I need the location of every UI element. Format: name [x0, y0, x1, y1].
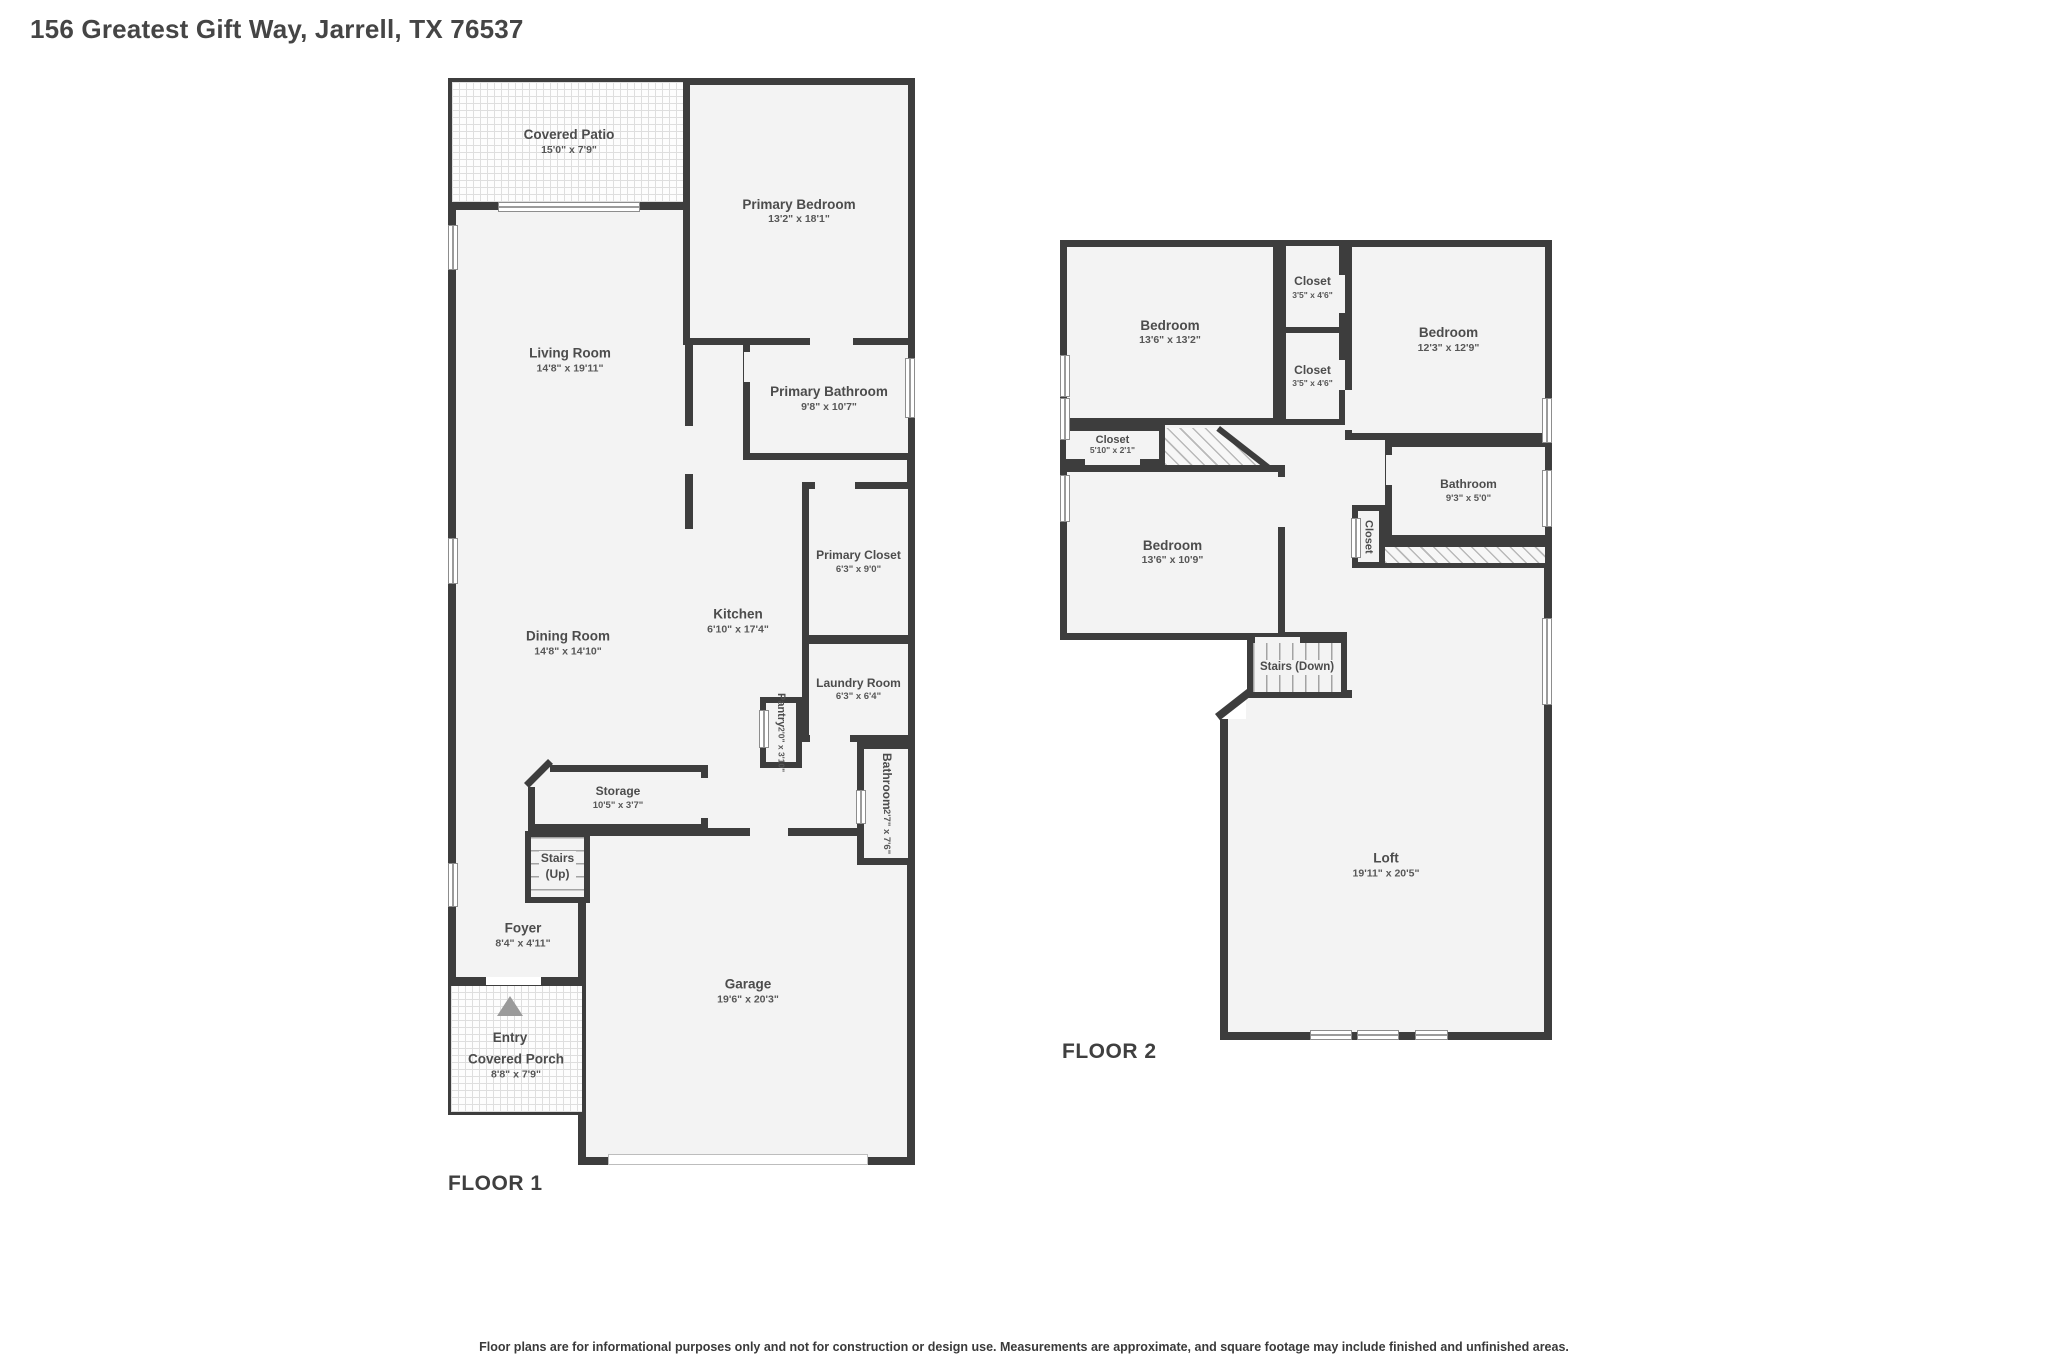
window [448, 538, 458, 584]
window [498, 202, 640, 212]
kitchen-label: Kitchen 6'10" x 17'4" [707, 605, 769, 636]
stairs-up-name: Stairs [541, 851, 574, 867]
room-stairs-down: Stairs (Down) [1247, 637, 1347, 698]
door-opening [744, 352, 750, 382]
floor-plan-page: 156 Greatest Gift Way, Jarrell, TX 76537… [0, 0, 2048, 1365]
bedroom-3-label: Bedroom 13'6" x 10'9" [1142, 537, 1204, 568]
closet-3-dims: 5'10" x 2'1" [1090, 446, 1135, 455]
dining-room-name: Dining Room [526, 627, 610, 645]
closet-4-label: Closet [1361, 520, 1375, 554]
room-closet-1: Closet 3'5" x 4'6" [1280, 240, 1345, 335]
loft-label: Loft 19'11" x 20'5" [1353, 849, 1420, 880]
bathroom-2-label: Bathroom 9'3" x 5'0" [1440, 477, 1497, 505]
primary-closet-dims: 6'3" x 9'0" [816, 564, 901, 576]
bathroom-2-name: Bathroom [1440, 477, 1497, 493]
foyer-label: Foyer 8'4" x 4'11" [495, 919, 550, 950]
bathroom-2-dims: 9'3" x 5'0" [1440, 493, 1497, 505]
window [1542, 618, 1552, 705]
bedroom-1-dims: 13'6" x 13'2" [1139, 334, 1201, 348]
door-opening [1339, 360, 1345, 390]
primary-bedroom-name: Primary Bedroom [742, 196, 855, 214]
door-opening [750, 828, 788, 836]
room-storage: Storage 10'5" x 3'7" [528, 765, 708, 831]
page-title: 156 Greatest Gift Way, Jarrell, TX 76537 [30, 14, 524, 45]
bedroom-1-name: Bedroom [1139, 317, 1201, 335]
door-opening [1386, 455, 1392, 485]
room-bedroom-3: Bedroom 13'6" x 10'9" [1060, 465, 1285, 640]
closet-1-label: Closet 3'5" x 4'6" [1292, 274, 1332, 301]
window [1415, 1030, 1448, 1040]
bedroom-2-dims: 12'3" x 12'9" [1418, 342, 1480, 356]
loft-dims: 19'11" x 20'5" [1353, 867, 1420, 881]
window [1060, 355, 1070, 397]
living-room-name: Living Room [529, 344, 611, 362]
room-bedroom-1: Bedroom 13'6" x 13'2" [1060, 240, 1280, 425]
primary-bathroom-name: Primary Bathroom [770, 383, 888, 401]
dining-room-label: Dining Room 14'8" x 14'10" [526, 627, 610, 658]
window [1351, 518, 1361, 558]
door-opening [1345, 390, 1353, 430]
covered-patio-name: Covered Patio [524, 126, 615, 144]
bedroom-2-label: Bedroom 12'3" x 12'9" [1418, 324, 1480, 355]
room-primary-bedroom: Primary Bedroom 13'2" x 18'1" [683, 78, 915, 345]
bedroom-1-label: Bedroom 13'6" x 13'2" [1139, 317, 1201, 348]
foyer-dims: 8'4" x 4'11" [495, 937, 550, 951]
window [1542, 470, 1552, 527]
door-opening [815, 482, 855, 489]
pantry-name: Pantry [774, 693, 788, 727]
entry-label: Entry [493, 1029, 528, 1047]
closet-4-name: Closet [1361, 520, 1375, 554]
window [1310, 1030, 1352, 1040]
door-opening [700, 778, 708, 818]
primary-bathroom-label: Primary Bathroom 9'8" x 10'7" [770, 383, 888, 414]
door-opening [810, 338, 853, 345]
living-room-label: Living Room 14'8" x 19'11" [529, 344, 611, 375]
dining-room-dims: 14'8" x 14'10" [526, 645, 610, 659]
garage-dims: 19'6" x 20'3" [717, 993, 779, 1007]
pantry-label: Pantry 2'0" x 3'10" [774, 693, 788, 772]
primary-closet-label: Primary Closet 6'3" x 9'0" [816, 548, 901, 576]
laundry-name: Laundry Room [816, 676, 901, 692]
bathroom1-label: Bathroom 2'7" x 7'6" [878, 753, 894, 855]
covered-patio-dims: 15'0" x 7'9" [524, 144, 615, 158]
wall-living-kitchen-upper [685, 338, 693, 426]
closet-1-name: Closet [1292, 274, 1332, 290]
living-room-dims: 14'8" x 19'11" [529, 362, 611, 376]
bedroom-2-name: Bedroom [1418, 324, 1480, 342]
kitchen-name: Kitchen [707, 605, 769, 623]
window [1060, 475, 1070, 522]
window [759, 710, 769, 748]
kitchen-dims: 6'10" x 17'4" [707, 623, 769, 637]
floor2-label: FLOOR 2 [1062, 1040, 1157, 1064]
window [905, 358, 915, 418]
room-primary-closet: Primary Closet 6'3" x 9'0" [802, 482, 915, 642]
garage-label: Garage 19'6" x 20'3" [717, 975, 779, 1006]
room-laundry: Laundry Room 6'3" x 6'4" [802, 637, 915, 742]
storage-label: Storage 10'5" x 3'7" [593, 784, 644, 812]
garage-door [608, 1154, 868, 1165]
bathroom1-name: Bathroom [878, 753, 894, 810]
closet-2-dims: 3'5" x 4'6" [1292, 378, 1332, 389]
floor1-label: FLOOR 1 [448, 1172, 543, 1196]
window [1542, 398, 1552, 443]
disclaimer: Floor plans are for informational purpos… [0, 1340, 2048, 1354]
window [448, 225, 458, 270]
door-opening [810, 735, 850, 742]
window [448, 863, 458, 907]
closet-1-dims: 3'5" x 4'6" [1292, 290, 1332, 301]
door-opening [1085, 459, 1140, 465]
entry-arrow-icon [497, 996, 523, 1016]
hatched-strip [1385, 542, 1545, 568]
garage-name: Garage [717, 975, 779, 993]
room-bedroom-2: Bedroom 12'3" x 12'9" [1345, 240, 1552, 440]
foyer-name: Foyer [495, 919, 550, 937]
window [1357, 1030, 1399, 1040]
window [1060, 398, 1070, 440]
wall-living-kitchen-lower [685, 474, 693, 529]
stairs-down-name: Stairs (Down) [1260, 660, 1334, 675]
room-covered-patio: Covered Patio 15'0" x 7'9" [448, 78, 690, 210]
room-primary-bathroom: Primary Bathroom 9'8" x 10'7" [743, 338, 915, 460]
floor1-plan: Covered Patio 15'0" x 7'9" Primary Bedro… [448, 78, 915, 1165]
covered-patio-label: Covered Patio 15'0" x 7'9" [524, 126, 615, 157]
bedroom-3-dims: 13'6" x 10'9" [1142, 554, 1204, 568]
window [856, 790, 866, 824]
primary-bedroom-label: Primary Bedroom 13'2" x 18'1" [742, 196, 855, 227]
closet-3-label: Closet 5'10" x 2'1" [1090, 434, 1135, 455]
laundry-label: Laundry Room 6'3" x 6'4" [816, 676, 901, 704]
floor2-plan: Bedroom 13'6" x 13'2" Closet 3'5" x 4'6"… [1060, 240, 1552, 1040]
room-closet-2: Closet 3'5" x 4'6" [1280, 327, 1345, 425]
door-opening [1339, 275, 1345, 313]
stairs-up-name2: (Up) [541, 867, 574, 883]
open-seam [1352, 690, 1544, 699]
room-stairs-up: Stairs (Up) [525, 831, 590, 903]
bedroom-3-name: Bedroom [1142, 537, 1204, 555]
entry-door-opening [486, 977, 541, 985]
stairs-up-label: Stairs (Up) [539, 851, 576, 882]
loft-name: Loft [1353, 849, 1420, 867]
storage-name: Storage [593, 784, 644, 800]
door-opening [1277, 477, 1285, 527]
primary-bathroom-dims: 9'8" x 10'7" [770, 401, 888, 415]
closet-2-label: Closet 3'5" x 4'6" [1292, 363, 1332, 390]
door-opening [1255, 637, 1300, 643]
room-bathroom-2: Bathroom 9'3" x 5'0" [1385, 440, 1552, 542]
covered-porch-label: Covered Porch 8'8" x 7'9" [468, 1050, 564, 1081]
storage-dims: 10'5" x 3'7" [593, 800, 644, 812]
primary-closet-name: Primary Closet [816, 548, 901, 564]
primary-bedroom-dims: 13'2" x 18'1" [742, 213, 855, 227]
entry-name: Entry [493, 1029, 528, 1047]
covered-porch-dims: 8'8" x 7'9" [468, 1068, 564, 1082]
closet-2-name: Closet [1292, 363, 1332, 379]
laundry-dims: 6'3" x 6'4" [816, 691, 901, 703]
covered-porch-name: Covered Porch [468, 1050, 564, 1068]
bathroom1-dims: 2'7" x 7'6" [880, 809, 892, 854]
pantry-dims: 2'0" x 3'10" [775, 727, 786, 772]
stairs-down-label: Stairs (Down) [1259, 660, 1335, 675]
